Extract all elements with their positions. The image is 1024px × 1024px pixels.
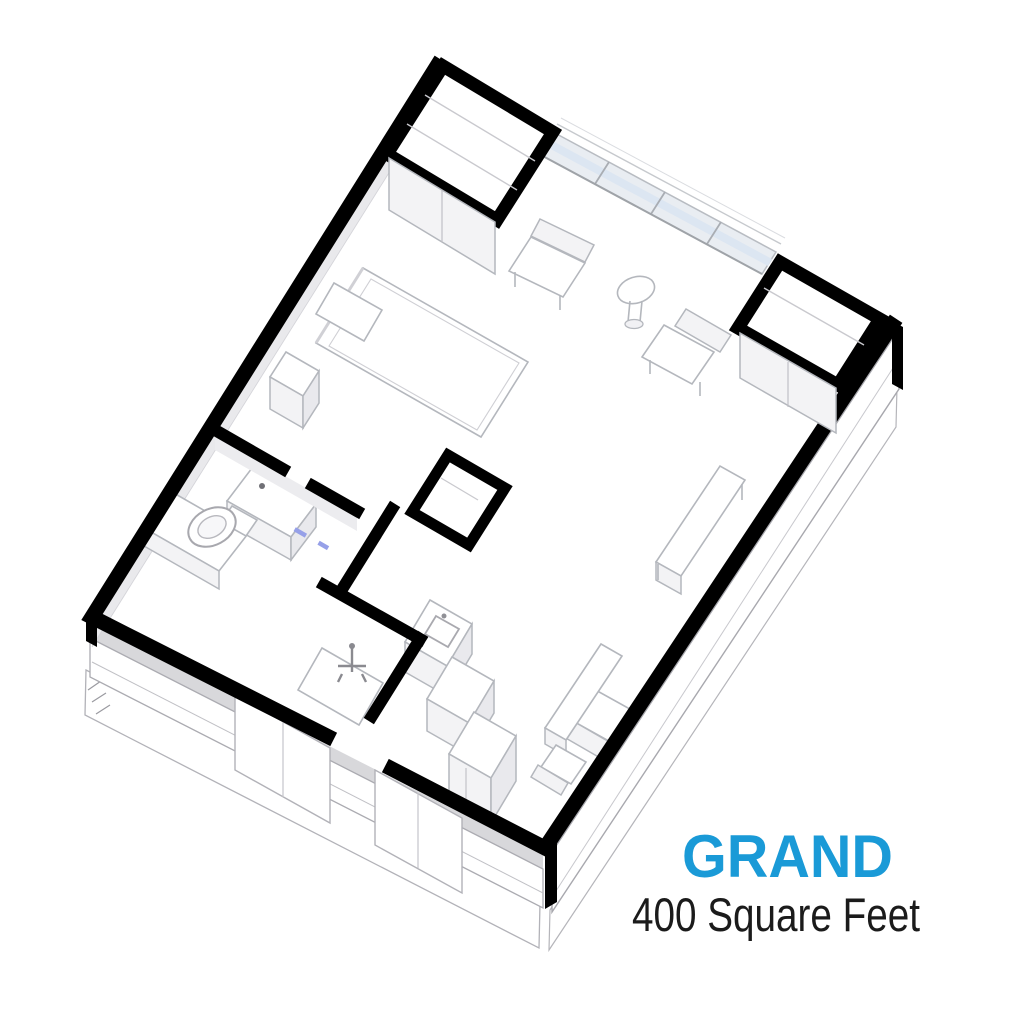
caption: GRAND 400 Square Feet bbox=[632, 823, 920, 941]
unit-area-label: 400 Square Feet bbox=[632, 888, 920, 941]
floorplan-illustration: GRAND 400 Square Feet bbox=[0, 0, 1024, 1024]
unit-name-label: GRAND bbox=[682, 823, 893, 890]
floorplan-card: GRAND 400 Square Feet bbox=[0, 0, 1024, 1024]
